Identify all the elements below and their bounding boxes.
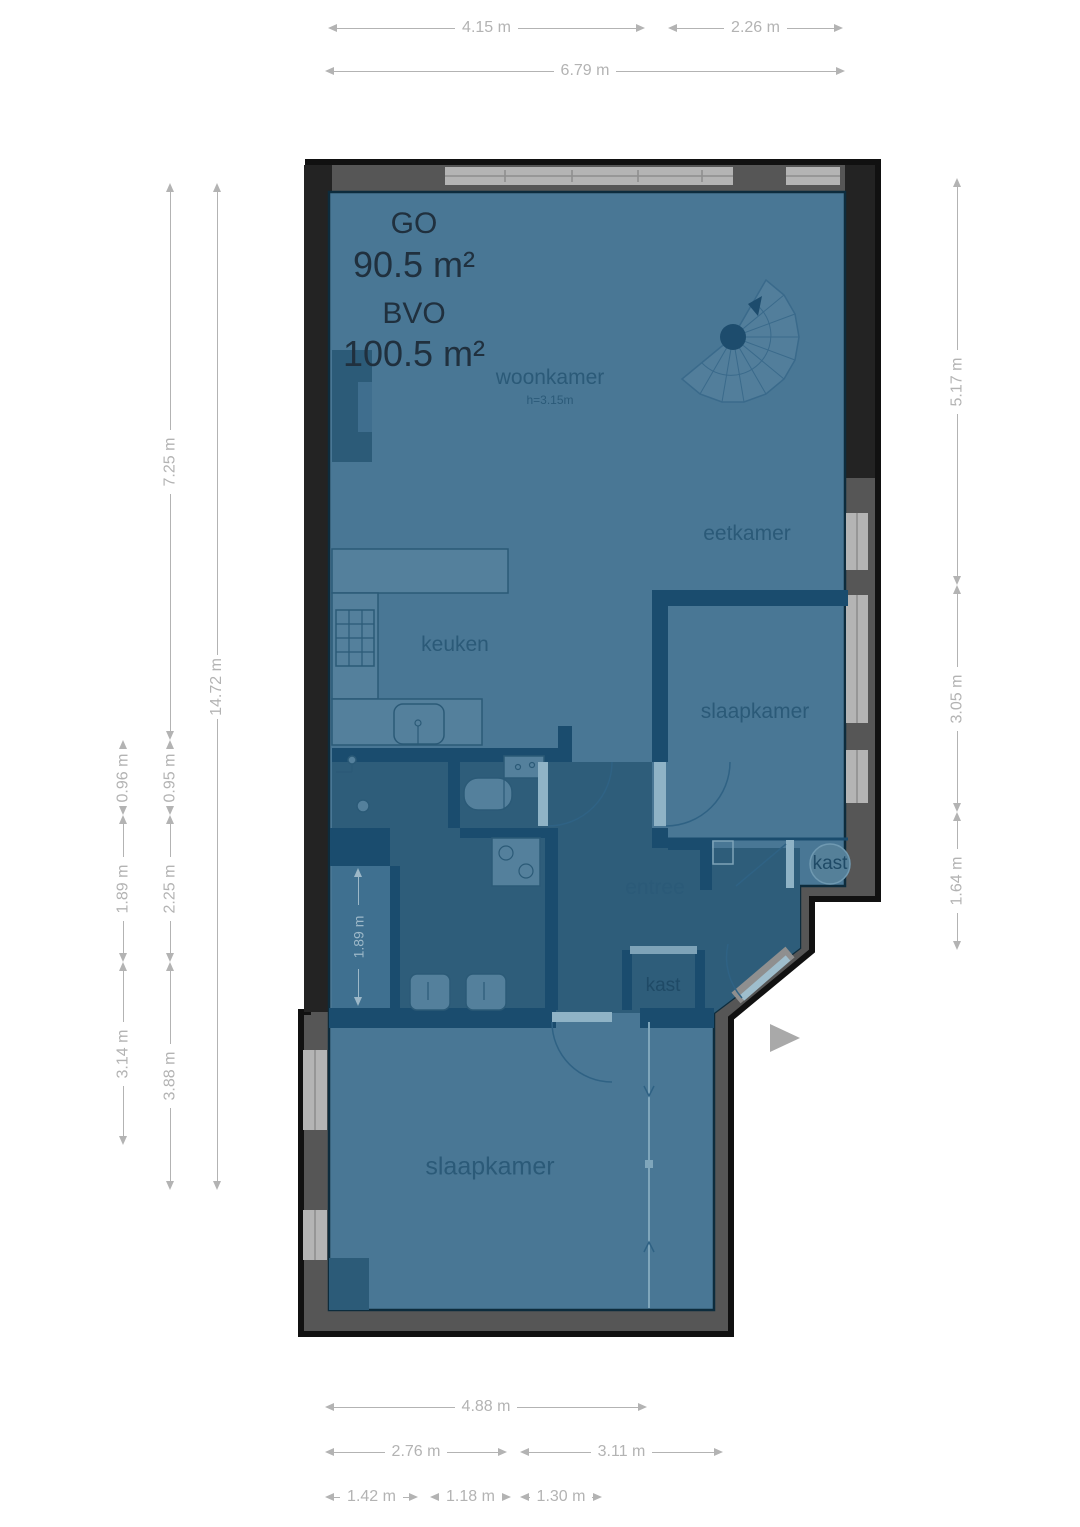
- floorplan-canvas: GO 90.5 m² BVO 100.5 m² woonkamer h=3.15…: [0, 0, 1080, 1527]
- kast-lower-wall: [622, 950, 632, 1010]
- room-label-entree: entree: [625, 876, 685, 900]
- dimension-bottom-3c: 1.30 m: [520, 1489, 602, 1505]
- dimension-bottom-total: 4.88 m: [325, 1399, 647, 1415]
- room-label-kast-lower: kast: [646, 975, 681, 997]
- dimension-left-mid-2: 0.95 m: [162, 740, 178, 815]
- dimension-bottom-2b: 3.11 m: [520, 1444, 723, 1460]
- shower-drain: [357, 800, 369, 812]
- dimension-left-outer-2: 1.89 m: [115, 815, 131, 962]
- dimension-top-1: 4.15 m: [328, 20, 645, 36]
- dimension-left-mid-1: 7.25 m: [162, 183, 178, 740]
- entrance-arrow-icon: [770, 1024, 800, 1052]
- bvo-value: 100.5 m²: [343, 331, 485, 376]
- toilet: [464, 778, 512, 810]
- dryer: [466, 974, 506, 1010]
- area-summary: GO 90.5 m² BVO 100.5 m²: [343, 207, 485, 386]
- kitchen-sink: [394, 704, 444, 744]
- dimension-left-total: 14.72 m: [209, 183, 225, 1190]
- washer: [410, 974, 450, 1010]
- room-label-slaapkamer-bottom: slaapkamer: [425, 1153, 554, 1182]
- room-label-keuken: keuken: [421, 633, 489, 657]
- room-label-slaapkamer-right: slaapkamer: [701, 700, 810, 724]
- bedroom-right-door-leaf: [654, 762, 666, 826]
- dimension-right-2: 3.05 m: [949, 585, 965, 812]
- dimension-bottom-3a: 1.42 m: [325, 1489, 418, 1505]
- dimension-interior-corridor: 1.89 m: [350, 868, 366, 1006]
- dimension-left-outer-3: 3.14 m: [115, 962, 131, 1145]
- dimension-top-2: 2.26 m: [668, 20, 843, 36]
- kast-fold-door: [786, 840, 794, 888]
- dimension-left-mid-4: 3.88 m: [162, 962, 178, 1190]
- dimension-left-mid-3: 2.25 m: [162, 815, 178, 962]
- stair-center-post: [720, 324, 746, 350]
- vanity-unit: [492, 838, 540, 886]
- room-label-kast-upper: kast: [813, 853, 848, 875]
- column-block: [329, 1258, 369, 1310]
- hall-door-leaf: [538, 762, 548, 826]
- dimension-right-3: 1.64 m: [949, 812, 965, 950]
- right-wall-dark: [845, 165, 875, 478]
- kast-lower-track: [630, 946, 697, 954]
- bedroom-bottom-door-leaf: [552, 1012, 612, 1022]
- room-label-eetkamer: eetkamer: [703, 522, 791, 546]
- room-label-woonkamer: woonkamer: [496, 366, 605, 390]
- dimension-right-1: 5.17 m: [949, 178, 965, 585]
- dimension-bottom-2a: 2.76 m: [325, 1444, 507, 1460]
- dimension-top-total: 6.79 m: [325, 63, 845, 79]
- go-label: GO: [343, 207, 485, 242]
- bvo-label: BVO: [343, 297, 485, 332]
- dimension-bottom-3b: 1.18 m: [430, 1489, 507, 1505]
- dimension-left-outer-1: 0.96 m: [115, 740, 131, 815]
- go-value: 90.5 m²: [343, 242, 485, 287]
- room-height-note: h=3.15m: [526, 393, 573, 407]
